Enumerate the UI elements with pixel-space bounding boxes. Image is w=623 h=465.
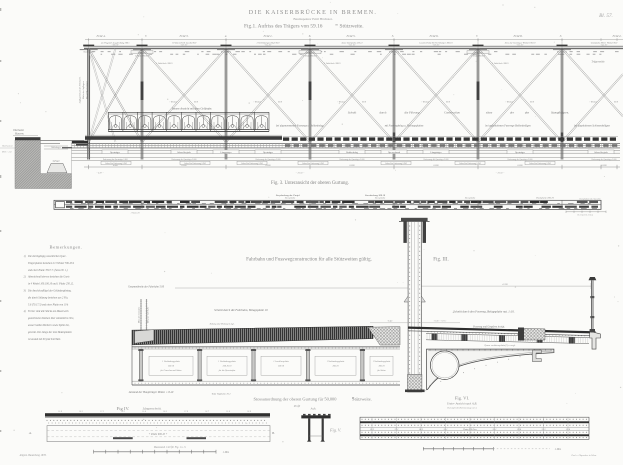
svg-text:Schnitt: Schnitt xyxy=(348,111,356,115)
svg-text:Längsträger: Längsträger xyxy=(431,151,442,154)
svg-text:Entfernung der Querträger 2.00: Entfernung der Querträger 2.000 xyxy=(424,158,449,161)
svg-text:Schwellenjoch: Schwellenjoch xyxy=(594,152,608,154)
svg-text:Platte 620 Gew.: Platte 620 Gew. xyxy=(462,428,477,431)
svg-text:Innere Ansicht mit dem Gelände: Innere Ansicht mit dem Geländer. xyxy=(171,106,213,110)
svg-text:in 4 Winkel 100.100.10 und 1 P: in 4 Winkel 100.100.10 und 1 Platte 250.… xyxy=(28,283,74,286)
svg-text:A.: A. xyxy=(28,431,32,435)
svg-text:+Winkel: +Winkel xyxy=(337,102,345,104)
svg-text:Schwellen Entfernung 0.942: Schwellen Entfernung 0.942 xyxy=(302,162,324,165)
svg-text:300.10: 300.10 xyxy=(378,366,385,368)
svg-text:2): 2) xyxy=(24,276,26,279)
svg-text:Längsträger: Längsträger xyxy=(221,151,232,154)
svg-text:für die Quersteifen: für die Quersteifen xyxy=(219,369,236,372)
svg-text:Fig. 3. Unteransicht der obere: Fig. 3. Unteransicht der oberen Gurtung. xyxy=(271,181,349,186)
svg-text:1 Stehblech 300.9: 1 Stehblech 300.9 xyxy=(156,62,173,65)
svg-text:den: den xyxy=(525,111,530,115)
svg-text:Feld 2.: Feld 2. xyxy=(611,34,621,38)
svg-text:260.10.10: 260.10.10 xyxy=(223,366,233,368)
svg-text:Entfernung der Querträger 2.00: Entfernung der Querträger 2.000 xyxy=(592,158,617,161)
svg-text:Rollenlager: Rollenlager xyxy=(51,146,61,149)
svg-text:1 Niete 20: 1 Niete 20 xyxy=(131,211,141,214)
svg-text:gezeichneten Stücken über sämm: gezeichneten Stücken über sämmtliche Ort… xyxy=(28,317,74,320)
svg-text:+Winkel: +Winkel xyxy=(169,102,177,104)
svg-text:Bemerkungen.: Bemerkungen. xyxy=(50,244,83,249)
svg-text:Maassstab 1:40 für Fig. 1 u. 3: Maassstab 1:40 für Fig. 1 u. 3. xyxy=(153,446,187,449)
svg-text:Hochwasser: Hochwasser xyxy=(1,146,13,148)
svg-text:~342.10~: ~342.10~ xyxy=(600,45,609,47)
svg-text:Schwellen Entfernung 0.942: Schwellen Entfernung 0.942 xyxy=(184,162,206,165)
svg-text:Entfernung der Querträger 2.00: Entfernung der Querträger 2.000 xyxy=(103,158,128,161)
svg-text:4): 4) xyxy=(24,310,26,313)
svg-text:Profil: Profil xyxy=(293,405,301,408)
svg-text:Feld 4.: Feld 4. xyxy=(95,34,105,38)
svg-text:Stützweite.: Stützweite. xyxy=(352,396,372,401)
svg-text:Schwellen Entfernung 0.942: Schwellen Entfernung 0.942 xyxy=(459,162,481,165)
svg-text:Feld 8.: Feld 8. xyxy=(512,34,522,38)
svg-text:~321.10~: ~321.10~ xyxy=(348,45,357,47)
svg-text:geneckt. Die Länge der 4ten Bo: geneckt. Die Länge der 4ten Bodenplatten xyxy=(28,331,72,334)
svg-text:+Winkel: +Winkel xyxy=(505,102,513,104)
svg-text:260.10: 260.10 xyxy=(332,366,339,368)
svg-text:1 Stehblech 300.9: 1 Stehblech 300.9 xyxy=(492,62,509,65)
svg-text:Querträger: Querträger xyxy=(515,151,525,154)
svg-text:+ Platte 600.10 +: + Platte 600.10 + xyxy=(149,433,168,436)
svg-text:+Winkel: +Winkel xyxy=(253,102,261,104)
svg-text:~307.10~: ~307.10~ xyxy=(180,45,189,47)
svg-text:Fig. III.: Fig. III. xyxy=(433,257,448,262)
svg-text:Mauerflucht hinten: Mauerflucht hinten xyxy=(85,80,88,100)
svg-text:Fig.1. Aufriss des Trägers von: Fig.1. Aufriss des Trägers von 59.16 xyxy=(244,23,323,30)
svg-text:für Stütze: für Stütze xyxy=(377,369,385,372)
svg-text:1 Verbindungsplatte: 1 Verbindungsplatte xyxy=(162,360,180,363)
svg-text:bei abgenommenen Fusswege u. B: bei abgenommenen Fusswege u. Bohlenbelag… xyxy=(276,125,324,128)
svg-text:Fig. V.: Fig. V. xyxy=(329,428,341,433)
svg-text:Stossplatte: Stossplatte xyxy=(465,197,475,200)
svg-text:+Winkel: +Winkel xyxy=(589,102,597,104)
svg-text:1 Verbindungsplatte: 1 Verbindungsplatte xyxy=(327,360,345,363)
svg-text:1 Anschlussplatte: 1 Anschlussplatte xyxy=(273,360,288,363)
svg-text:3.: 3. xyxy=(560,34,563,38)
svg-text:durch: durch xyxy=(380,111,387,115)
svg-text:ist anstatt mit 60 jetzt 8.40: ist anstatt mit 60 jetzt 8.40 Met. xyxy=(28,338,61,341)
svg-text:und einer Platte 700.7.7. (Sto: und einer Platte 700.7.7. (Stoss Nr 1.) xyxy=(28,269,68,272)
svg-text:die durch Stützung bestehen au: die durch Stützung bestehen aus 2 Fla. xyxy=(28,296,69,299)
svg-text:Unter- Ansicht nach A.B.: Unter- Ansicht nach A.B. xyxy=(447,402,477,406)
svg-text:M.W. +2.4: M.W. +2.4 xyxy=(1,151,12,154)
svg-text:Feld 3.: Feld 3. xyxy=(178,34,188,38)
svg-text:+0.30+ +0.75+: +0.30+ +0.75+ xyxy=(433,321,447,323)
svg-text:4.300: 4.300 xyxy=(502,283,508,286)
svg-text:ausser halben Brettern sowie S: ausser halben Brettern sowie Splint bei, xyxy=(28,324,70,327)
svg-text:Mitte der Fahrbahn: Mitte der Fahrbahn xyxy=(146,307,149,324)
svg-text:Aufs.: Aufs. xyxy=(310,407,317,410)
svg-text:7.: 7. xyxy=(476,34,479,38)
svg-text:Stampfträgern.: Stampfträgern. xyxy=(551,111,569,115)
svg-text:Daraufsicht (Krümmung vert.): Daraufsicht (Krümmung vert.) xyxy=(446,406,476,409)
svg-text:1 Verbindungsplatte: 1 Verbindungsplatte xyxy=(218,360,236,363)
svg-text:Auflagerdruck des Windverb.: Auflagerdruck des Windverb. xyxy=(79,76,82,104)
svg-text:+0.45+: +0.45+ xyxy=(387,321,394,323)
svg-text:Feld 6.: Feld 6. xyxy=(428,34,438,38)
svg-text:B.: B. xyxy=(272,431,275,435)
svg-text:Trägermitte: Trägermitte xyxy=(591,61,605,64)
svg-text:Deckplatte 300.10: Deckplatte 300.10 xyxy=(535,197,554,200)
svg-text:Querträger: Querträger xyxy=(263,151,273,154)
svg-text:Querträger: Querträger xyxy=(110,151,120,154)
svg-text:Stossplatte: Stossplatte xyxy=(375,197,385,200)
svg-text:Quere verkämmplatte(?) u vergl: Quere verkämmplatte(?) u vergl. xyxy=(484,344,516,347)
svg-text:360.10: 360.10 xyxy=(168,366,175,368)
svg-text:Entfernung der Querträger 2.00: Entfernung der Querträger 2.000 xyxy=(340,158,365,161)
svg-text:Entfernung der Querträger 2.00: Entfernung der Querträger 2.000 xyxy=(256,158,281,161)
svg-text:1 Met.: 1 Met. xyxy=(223,451,230,454)
svg-text:Ferner sind alle Stücke am Mau: Ferner sind alle Stücke am Mauerwerk xyxy=(27,310,69,313)
svg-text:6.: 6. xyxy=(309,34,312,38)
svg-text:1): 1) xyxy=(24,255,26,258)
svg-text:Construction: Construction xyxy=(444,111,460,115)
svg-text:36.1 34.6 31.2 30.4: 36.1 34.6 31.2 30.4 xyxy=(577,215,593,217)
svg-text:16.1: 16.1 xyxy=(79,411,83,413)
svg-text:Fahrbahn und Fusswegconstructi: Fahrbahn und Fusswegconstruction für all… xyxy=(246,257,372,262)
svg-text:Gesammtbreite der Fahrbahn 5.0: Gesammtbreite der Fahrbahn 5.00 xyxy=(128,285,165,288)
svg-text:Ged. v. Obpacher in Wien.: Ged. v. Obpacher in Wien. xyxy=(571,454,597,457)
svg-text:Bohlenbelag: Bohlenbelag xyxy=(346,151,358,154)
svg-text:~ 29.58 ~: ~ 29.58 ~ xyxy=(296,173,305,175)
svg-text:Stützweite.: Stützweite. xyxy=(340,24,364,30)
svg-text:Abweichend hiervon bestehen di: Abweichend hiervon bestehen die Gurte xyxy=(27,276,70,279)
svg-text:Schwellenjoch: Schwellenjoch xyxy=(177,152,191,154)
svg-text:bei aufgehobenen Fusswege Bohl: bei aufgehobenen Fusswege Bohlenbelägen xyxy=(485,125,531,128)
svg-text:Abstand der Hauptträger Mitten: Abstand der Hauptträger Mitten = 8.40 xyxy=(128,391,174,394)
svg-text:4.: 4. xyxy=(225,34,228,38)
svg-text:Trägerplatten bestehen in 3 Wi: Trägerplatten bestehen in 3 Wickel 700.1… xyxy=(28,262,75,265)
svg-text:Fig. VI.: Fig. VI. xyxy=(455,395,469,400)
svg-text:1 Stehblech 300.9: 1 Stehblech 300.9 xyxy=(324,62,341,65)
svg-text:Bettung und Dielung in eigt.: Bettung und Dielung in eigt. xyxy=(210,323,235,326)
svg-text:Mauerw.: Mauerw. xyxy=(14,132,24,135)
svg-text:Feld 1.: Feld 1. xyxy=(262,34,272,38)
svg-text:bei abgehobenen Schienenbeläge: bei abgehobenen Schienenbelägen xyxy=(574,125,611,128)
svg-text:süsse: süsse xyxy=(486,111,493,115)
svg-text:Entfernung der Querträger 2.00: Entfernung der Querträger 2.000 xyxy=(172,158,197,161)
svg-text:+Winkel: +Winkel xyxy=(421,102,429,104)
svg-text:Schwellen Entfernung 0.942: Schwellen Entfernung 0.942 xyxy=(529,162,551,165)
svg-text:3): 3) xyxy=(24,290,26,293)
svg-text:Mitte des Auflagers: Mitte des Auflagers xyxy=(82,81,85,100)
svg-text:Schwellen Entfernung 0.942: Schwellen Entfernung 0.942 xyxy=(385,162,407,165)
svg-text:~328.10~: ~328.10~ xyxy=(432,45,441,47)
svg-text:Fussweg und Gespärre in eigt.: Fussweg und Gespärre in eigt. xyxy=(472,326,505,329)
svg-text:Bauinspektor Emil Höchster.: Bauinspektor Emil Höchster. xyxy=(293,17,332,21)
svg-text:200.10: 200.10 xyxy=(278,366,285,368)
svg-text:Mitte des Geländers: Mitte des Geländers xyxy=(137,307,140,324)
svg-text:5.: 5. xyxy=(392,34,395,38)
svg-text:Stossplatte: Stossplatte xyxy=(285,197,295,200)
svg-text:1 Met.: 1 Met. xyxy=(555,448,562,451)
svg-text:~300.10~: ~300.10~ xyxy=(111,45,120,47)
svg-text:Entfernung der Querträger 2.00: Entfernung der Querträger 2.000 xyxy=(508,158,533,161)
svg-text:Auflager: Auflager xyxy=(51,160,60,163)
svg-text:die Führung: die Führung xyxy=(405,111,420,115)
svg-text:~ 29.58 ~: ~ 29.58 ~ xyxy=(496,173,505,175)
svg-text:~335.10~: ~335.10~ xyxy=(516,45,525,47)
svg-text:Tiefe Tiefplatte 10.2: Tiefe Tiefplatte 10.2 xyxy=(211,393,231,396)
svg-text:Stossplatten mit 2 Laschen: Stossplatten mit 2 Laschen xyxy=(579,197,600,200)
svg-text:Die durchgängig wesentlichen Q: Die durchgängig wesentlichen Quer- xyxy=(27,255,67,258)
svg-text:Feld 5.: Feld 5. xyxy=(345,34,355,38)
svg-text:~ 4.87 ~: ~ 4.87 ~ xyxy=(96,172,104,175)
svg-text:DIE KAISERBRÜCKE IN BREMEN.: DIE KAISERBRÜCKE IN BREMEN. xyxy=(249,9,377,16)
svg-text:~314.10~: ~314.10~ xyxy=(264,45,273,47)
svg-text:1 Verbindungsplatte: 1 Verbindungsplatte xyxy=(373,360,391,363)
svg-text:Bl. 57.: Bl. 57. xyxy=(599,13,613,19)
svg-text:Querverband: Querverband xyxy=(388,152,401,154)
svg-text:mit Fusswegbelag u. Dielungspl: mit Fusswegbelag u. Dielungsplatten xyxy=(385,125,424,128)
svg-text:5.6 (70.17.5) und einer Platte: 5.6 (70.17.5) und einer Platte von 10 k xyxy=(28,303,69,306)
svg-text:für Consolen und Stütze: für Consolen und Stütze xyxy=(161,369,182,372)
svg-text:Allgem. Bauzeitung 1878.: Allgem. Bauzeitung 1878. xyxy=(19,454,47,457)
svg-text:7.: 7. xyxy=(145,34,148,38)
svg-text:Schwellen Entfernung 0.942: Schwellen Entfernung 0.942 xyxy=(241,162,263,165)
svg-text:Die Anschlussflügel der Geländ: Die Anschlussflügel der Geländerpfosten, xyxy=(27,290,72,293)
